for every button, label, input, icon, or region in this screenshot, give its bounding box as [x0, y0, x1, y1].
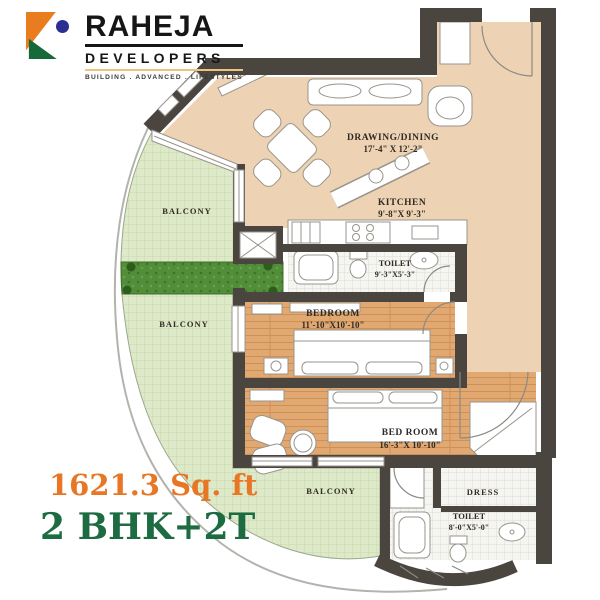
balcony-top-label: BALCONY: [162, 206, 212, 216]
logo: RAHEJA DEVELOPERS BUILDING . ADVANCED . …: [26, 12, 243, 81]
bedroom2-dims: 16'-3"X 10'-10": [379, 440, 440, 450]
bedroom2-label: BED ROOM: [382, 428, 439, 438]
unit-summary: 1621.3 Sq. ft 2 BHK+2T: [40, 468, 257, 548]
toilet1-label: TOILET: [379, 258, 412, 268]
unit-type: 2 BHK+2T: [40, 506, 257, 548]
logo-blue-dot: [56, 20, 69, 33]
kitchen-dims: 9'-8"X 9'-3": [378, 209, 426, 219]
brand-tagline: BUILDING . ADVANCED . LIFESTYLES: [85, 69, 243, 81]
drawing-label: DRAWING/DINING: [347, 133, 439, 143]
kitchen-label: KITCHEN: [378, 198, 426, 208]
unit-area: 1621.3 Sq. ft: [40, 468, 257, 502]
logo-icon: [26, 12, 74, 60]
toilet1-dims: 9'-3"X5'-3": [375, 270, 415, 279]
bedroom1-label: BEDROOM: [306, 309, 360, 319]
planter: [121, 262, 283, 296]
toilet2-label: TOILET: [453, 511, 486, 521]
drawing-dims: 17'-4" X 12'-2": [364, 144, 423, 154]
toilet2-dims: 8'-0"X5'-0": [449, 523, 489, 532]
balcony-bottom-label: BALCONY: [306, 486, 356, 496]
bedroom1-dims: 11'-10"X10'-10": [302, 320, 365, 330]
dress-label: DRESS: [467, 487, 499, 497]
brand-sub: DEVELOPERS: [85, 50, 243, 66]
balcony-mid-label: BALCONY: [159, 319, 209, 329]
logo-text: RAHEJA DEVELOPERS BUILDING . ADVANCED . …: [85, 12, 243, 81]
shaft: [240, 232, 276, 258]
brand-name: RAHEJA: [85, 12, 243, 47]
floorplan-page: DRAWING/DINING 17'-4" X 12'-2" KITCHEN 9…: [0, 0, 600, 600]
